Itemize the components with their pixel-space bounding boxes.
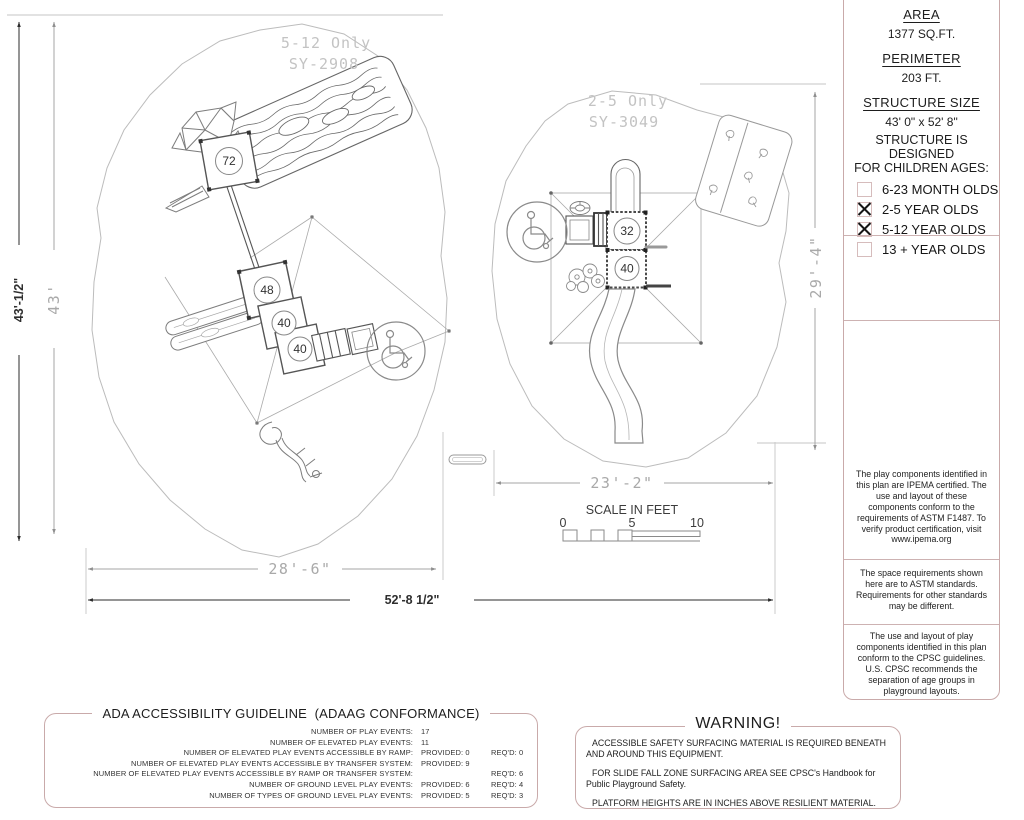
age-option-13plus: 13 + YEAR OLDS <box>844 239 999 259</box>
sidebar-stats: AREA 1377 SQ.FT. PERIMETER 203 FT. STRUC… <box>844 0 999 259</box>
ada-row: NUMBER OF PLAY EVENTS: 17 <box>45 727 537 738</box>
sidebar-divider <box>844 235 999 236</box>
ada-guideline-box: ADA ACCESSIBILITY GUIDELINE (ADAAG CONFO… <box>44 713 538 808</box>
ada-row-label: NUMBER OF TYPES OF GROUND LEVEL PLAY EVE… <box>45 791 413 802</box>
ada-row: NUMBER OF ELEVATED PLAY EVENTS ACCESSIBL… <box>45 759 537 770</box>
sidebar-divider <box>844 320 999 321</box>
roof-panel <box>693 113 794 229</box>
sidebar-divider <box>844 624 999 625</box>
structure-label-2-5-age: 2-5 Only <box>588 92 668 110</box>
scale-tick-5: 5 <box>629 516 636 530</box>
age-option-5-12: 5-12 YEAR OLDS <box>844 219 999 239</box>
ada-title-wrap: ADA ACCESSIBILITY GUIDELINE (ADAAG CONFO… <box>45 705 537 723</box>
spiral-climber <box>260 422 322 482</box>
glider-panel <box>166 186 209 212</box>
warning-line: PLATFORM HEIGHTS ARE IN INCHES ABOVE RES… <box>576 798 900 809</box>
area-label: AREA <box>844 7 999 22</box>
scale-bar: SCALE IN FEET 0 5 10 <box>560 503 704 541</box>
checkbox-6-23-months <box>857 182 872 197</box>
ada-row-provided: 11 <box>421 738 483 749</box>
warning-line: ACCESSIBLE SAFETY SURFACING MATERIAL IS … <box>576 738 900 759</box>
ada-row: NUMBER OF TYPES OF GROUND LEVEL PLAY EVE… <box>45 791 537 802</box>
age-option-6-23: 6-23 MONTH OLDS <box>844 179 999 199</box>
structure-label-2-5-model: SY-3049 <box>589 113 659 131</box>
accessible-symbol-right <box>507 202 567 262</box>
structure-label-5-12-model: SY-2908 <box>289 55 359 73</box>
area-value: 1377 SQ.FT. <box>844 27 999 41</box>
scale-title: SCALE IN FEET <box>586 503 679 517</box>
ada-row-reqd: REQ'D: 0 <box>491 748 537 759</box>
badge-48: 48 <box>260 283 274 297</box>
ada-row-label: NUMBER OF ELEVATED PLAY EVENTS ACCESSIBL… <box>45 748 413 759</box>
note-cpsc: The use and layout of play components id… <box>844 631 999 696</box>
straight-slide <box>611 160 640 215</box>
badge-40b: 40 <box>293 342 307 356</box>
ada-row-label: NUMBER OF ELEVATED PLAY EVENTS ACCESSIBL… <box>45 769 413 780</box>
badge-72: 72 <box>222 154 236 168</box>
structure-size-value: 43' 0" x 52' 8" <box>844 115 999 129</box>
warning-box: WARNING! ACCESSIBLE SAFETY SURFACING MAT… <box>575 726 901 809</box>
ada-row-label: NUMBER OF ELEVATED PLAY EVENTS ACCESSIBL… <box>45 759 413 770</box>
note-astm: The space requirements shown here are to… <box>844 568 999 612</box>
ada-row-provided <box>421 769 483 780</box>
age-option-2-5: 2-5 YEAR OLDS <box>844 199 999 219</box>
sidebar-divider <box>844 559 999 560</box>
badge-40c: 40 <box>620 262 634 276</box>
s-curve-slide <box>589 289 643 443</box>
accessible-symbol-left <box>367 322 425 380</box>
plan-sheet: 72 48 40 40 32 40 5-12 Only SY-2908 2-5 … <box>0 0 1024 820</box>
ada-row-reqd: REQ'D: 3 <box>491 791 537 802</box>
perimeter-value: 203 FT. <box>844 71 999 85</box>
checkbox-13-plus-years <box>857 242 872 257</box>
checkbox-2-5-years <box>857 202 872 217</box>
warning-title-wrap: WARNING! <box>576 715 900 733</box>
structure-label-5-12-age: 5-12 Only <box>281 34 371 52</box>
dim-label-left-height-inner: 43' <box>45 283 63 315</box>
ada-row-label: NUMBER OF ELEVATED PLAY EVENTS: <box>45 738 413 749</box>
designed-for-line1: STRUCTURE IS DESIGNED <box>844 133 999 161</box>
ada-row: NUMBER OF ELEVATED PLAY EVENTS ACCESSIBL… <box>45 748 537 759</box>
dim-label-left-width: 28'-6" <box>268 560 331 578</box>
steering-wheel <box>570 202 590 215</box>
badge-40a: 40 <box>277 316 291 330</box>
ada-row-reqd <box>491 738 537 749</box>
note-ipema: The play components identified in this p… <box>844 469 999 545</box>
warning-title: WARNING! <box>685 715 790 732</box>
ada-row-reqd <box>491 727 537 738</box>
ada-row-provided: PROVIDED: 0 <box>421 748 483 759</box>
ada-row: NUMBER OF ELEVATED PLAY EVENTS ACCESSIBL… <box>45 769 537 780</box>
ada-row: NUMBER OF GROUND LEVEL PLAY EVENTS: PROV… <box>45 780 537 791</box>
bench <box>449 455 486 464</box>
dim-label-overall-width: 52'-8 1/2" <box>385 593 440 607</box>
ada-title: ADA ACCESSIBILITY GUIDELINE (ADAAG CONFO… <box>92 706 489 721</box>
ada-row-reqd: REQ'D: 6 <box>491 769 537 780</box>
scale-tick-10: 10 <box>690 516 704 530</box>
flower-climber <box>567 264 605 293</box>
dim-label-right-width: 23'-2" <box>590 474 653 492</box>
badge-32: 32 <box>620 224 634 238</box>
designed-for-line2: FOR CHILDREN AGES: <box>844 161 999 175</box>
dim-label-right-height: 29'-4" <box>807 235 825 298</box>
perimeter-label: PERIMETER <box>844 51 999 66</box>
platform-height-badges: 72 48 40 40 32 40 <box>216 148 641 362</box>
transfer-station-right <box>566 213 607 246</box>
ada-row-provided: PROVIDED: 9 <box>421 759 483 770</box>
ada-row-reqd <box>491 759 537 770</box>
ada-rows: NUMBER OF PLAY EVENTS: 17 NUMBER OF ELEV… <box>45 727 537 801</box>
ada-row-provided: 17 <box>421 727 483 738</box>
age-option-label: 6-23 MONTH OLDS <box>882 182 998 197</box>
ada-row-provided: PROVIDED: 5 <box>421 791 483 802</box>
scale-tick-0: 0 <box>560 516 567 530</box>
ada-row-label: NUMBER OF PLAY EVENTS: <box>45 727 413 738</box>
structure-size-label: STRUCTURE SIZE <box>844 95 999 110</box>
dim-label-left-height-overall: 43'-1/2" <box>12 278 26 322</box>
plan-drawing-svg: 72 48 40 40 32 40 5-12 Only SY-2908 2-5 … <box>0 0 840 715</box>
age-option-label: 13 + YEAR OLDS <box>882 242 985 257</box>
age-option-label: 2-5 YEAR OLDS <box>882 202 979 217</box>
ada-row-label: NUMBER OF GROUND LEVEL PLAY EVENTS: <box>45 780 413 791</box>
ada-row-reqd: REQ'D: 4 <box>491 780 537 791</box>
ada-row-provided: PROVIDED: 6 <box>421 780 483 791</box>
info-sidebar: AREA 1377 SQ.FT. PERIMETER 203 FT. STRUC… <box>843 0 1000 700</box>
warning-line: FOR SLIDE FALL ZONE SURFACING AREA SEE C… <box>576 768 900 789</box>
ada-row: NUMBER OF ELEVATED PLAY EVENTS: 11 <box>45 738 537 749</box>
